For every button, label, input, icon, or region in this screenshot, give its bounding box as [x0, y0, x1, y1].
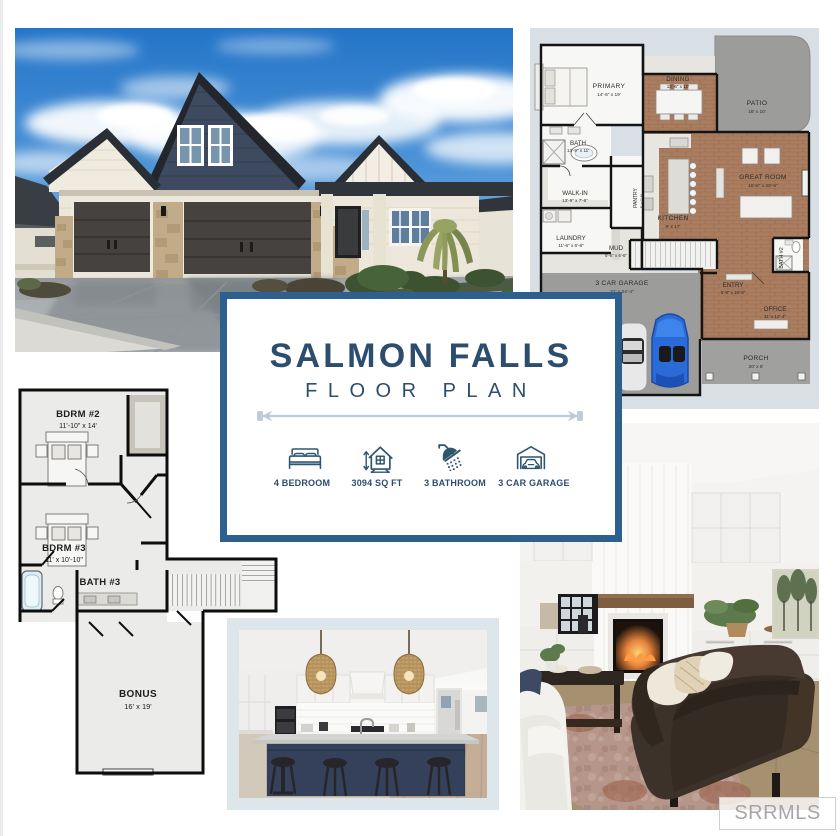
svg-text:16' x 19': 16' x 19' [124, 702, 152, 711]
svg-text:3 CAR GARAGE: 3 CAR GARAGE [595, 280, 648, 287]
svg-text:OFFICE: OFFICE [764, 306, 787, 313]
svg-text:11' x 12'-4": 11' x 12'-4" [764, 314, 787, 319]
svg-text:BATH #2: BATH #2 [779, 247, 785, 268]
svg-text:MUD: MUD [609, 245, 624, 252]
svg-text:13'-9" x 11': 13'-9" x 11' [567, 148, 589, 153]
svg-text:KITCHEN: KITCHEN [657, 215, 688, 222]
svg-text:WALK-IN: WALK-IN [562, 190, 588, 197]
svg-text:DINING: DINING [666, 76, 689, 83]
svg-text:BATH: BATH [570, 140, 586, 147]
svg-text:11' x 10'-10": 11' x 10'-10" [45, 557, 83, 564]
svg-text:18'-6" x 20'-6": 18'-6" x 20'-6" [748, 183, 778, 189]
svg-text:BONUS: BONUS [119, 689, 157, 700]
svg-text:11'-6" x 6'-8": 11'-6" x 6'-8" [558, 243, 584, 248]
svg-text:5'-8" x 18'-8": 5'-8" x 18'-8" [721, 290, 746, 295]
svg-text:5' x 7'-8": 5' x 7'-8" [640, 193, 644, 208]
svg-text:13'-9" x 7'-6": 13'-9" x 7'-6" [562, 198, 588, 203]
svg-text:ENTRY: ENTRY [723, 282, 744, 289]
svg-text:PANTRY: PANTRY [633, 187, 639, 207]
svg-text:BDRM #3: BDRM #3 [42, 543, 86, 554]
svg-text:GREAT ROOM: GREAT ROOM [739, 174, 786, 181]
svg-text:11'-10" x 14': 11'-10" x 14' [59, 423, 97, 430]
svg-text:14'-6" x 19': 14'-6" x 19' [597, 92, 621, 98]
svg-text:6'-6" x 6'-6": 6'-6" x 6'-6" [605, 253, 628, 258]
svg-text:9' x 17': 9' x 17' [666, 224, 681, 230]
svg-text:18' x 10': 18' x 10' [748, 109, 766, 115]
svg-text:13'-6" x 10': 13'-6" x 10' [667, 84, 690, 89]
svg-text:BATH #3: BATH #3 [80, 577, 121, 588]
svg-text:PRIMARY: PRIMARY [593, 83, 626, 90]
svg-text:LAUNDRY: LAUNDRY [556, 235, 585, 242]
svg-text:20' x 6': 20' x 6' [749, 364, 764, 370]
svg-text:PATIO: PATIO [747, 100, 768, 107]
svg-text:PORCH: PORCH [743, 355, 768, 362]
svg-text:BDRM #2: BDRM #2 [56, 409, 100, 420]
